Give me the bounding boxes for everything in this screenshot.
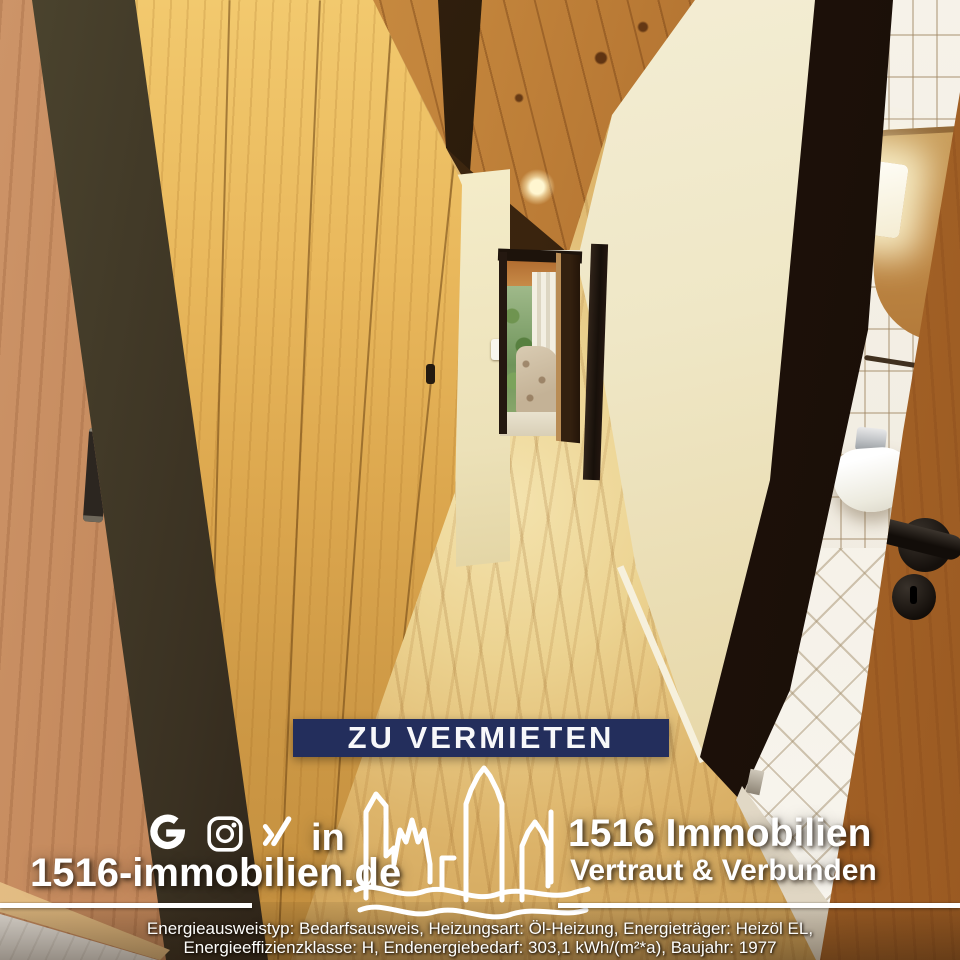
keyhole (910, 586, 917, 604)
website-url: 1516-immobilien.de (30, 851, 401, 896)
xing-icon (262, 818, 292, 852)
panel-seam (277, 0, 321, 959)
energy-certificate-line-2: Energieeffizienzklasse: H, Endenergiebed… (0, 938, 960, 957)
company-name: 1516 Immobilien (568, 812, 871, 856)
google-icon (148, 812, 188, 854)
divider-line-right (558, 903, 960, 908)
far-doorway-frame-left (499, 252, 507, 434)
instagram-icon (206, 815, 244, 853)
far-open-door (556, 253, 580, 444)
closet-door-handle (426, 364, 435, 384)
real-estate-photo-ad: ZU VERMIETEN in 1516-immobilien.de 1516 … (0, 0, 960, 960)
energy-certificate-line-1: Energieausweistyp: Bedarfsausweis, Heizu… (0, 919, 960, 938)
status-banner: ZU VERMIETEN (293, 719, 669, 757)
draped-chair (516, 346, 560, 414)
divider-line-left (0, 903, 252, 908)
banner-label: ZU VERMIETEN (348, 720, 615, 756)
company-tagline: Vertraut & Verbunden (570, 854, 877, 888)
skyline-logo (354, 760, 590, 928)
